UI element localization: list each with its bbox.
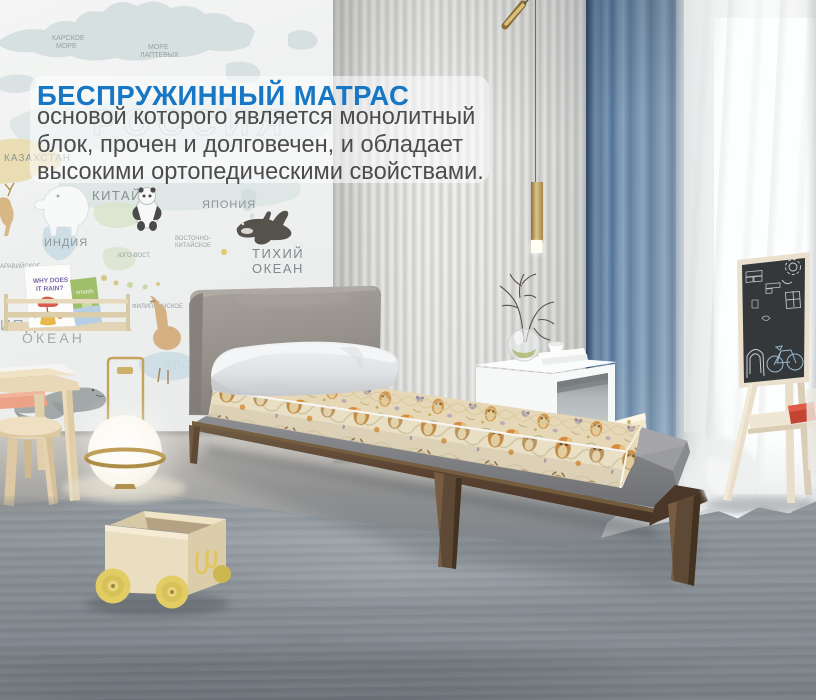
svg-text:ЯПОНИЯ: ЯПОНИЯ [202, 199, 256, 211]
svg-text:WHY DOES: WHY DOES [33, 277, 69, 285]
svg-text:МОРЕ: МОРЕ [56, 43, 77, 50]
svg-text:ЛАПТЕВЫХ: ЛАПТЕВЫХ [140, 52, 179, 59]
svg-text:МОРЕ: МОРЕ [148, 44, 169, 51]
svg-text:IT RAIN?: IT RAIN? [36, 285, 64, 293]
svg-text:КИТАЙСКОЕ: КИТАЙСКОЕ [175, 241, 211, 249]
svg-text:ЮГО-ВОСТ.: ЮГО-ВОСТ. [118, 253, 151, 259]
svg-text:ВОСТОЧНО-: ВОСТОЧНО- [175, 236, 211, 242]
svg-text:ОКЕАН: ОКЕАН [252, 261, 304, 276]
svg-text:smash: smash [76, 289, 94, 296]
svg-text:ТИХИЙ: ТИХИЙ [252, 246, 304, 261]
svg-text:ИНДИЯ: ИНДИЯ [44, 237, 88, 249]
svg-text:КАРСКОЕ: КАРСКОЕ [52, 35, 85, 42]
svg-text:ОКЕАН: ОКЕАН [22, 330, 85, 346]
svg-text:КИТАЙ: КИТАЙ [92, 188, 142, 203]
